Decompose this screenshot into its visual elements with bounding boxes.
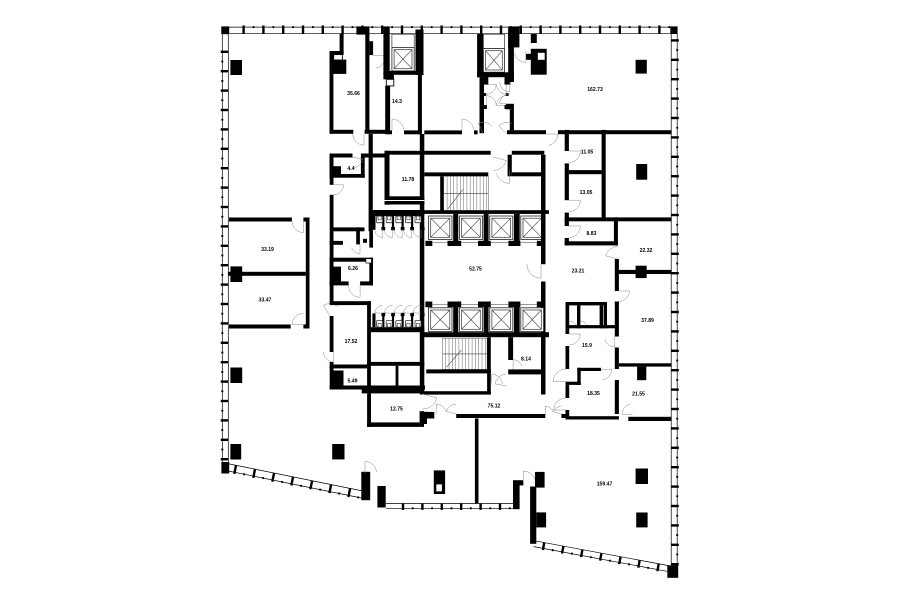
svg-text:37.89: 37.89 <box>641 318 654 324</box>
svg-text:8.14: 8.14 <box>521 357 531 363</box>
svg-text:35.66: 35.66 <box>347 91 360 97</box>
svg-text:33.47: 33.47 <box>259 297 272 303</box>
svg-text:52.75: 52.75 <box>469 267 482 273</box>
svg-text:12.75: 12.75 <box>390 407 403 413</box>
svg-text:13.05: 13.05 <box>580 190 593 196</box>
svg-text:14.3: 14.3 <box>392 99 402 105</box>
svg-text:15.9: 15.9 <box>582 343 592 349</box>
svg-text:8.83: 8.83 <box>587 231 597 237</box>
svg-text:11.05: 11.05 <box>581 150 594 156</box>
svg-text:162.73: 162.73 <box>587 87 603 93</box>
svg-text:6.26: 6.26 <box>348 266 358 272</box>
svg-text:22.32: 22.32 <box>640 248 653 254</box>
svg-text:18.35: 18.35 <box>587 391 600 397</box>
svg-text:75.12: 75.12 <box>488 403 501 409</box>
svg-text:159.47: 159.47 <box>597 482 613 488</box>
svg-text:4.4: 4.4 <box>347 166 354 172</box>
svg-text:11.78: 11.78 <box>402 177 415 183</box>
svg-text:21.55: 21.55 <box>632 392 645 398</box>
svg-text:5.49: 5.49 <box>348 379 358 385</box>
svg-text:17.52: 17.52 <box>345 339 358 345</box>
svg-text:33.19: 33.19 <box>261 247 274 253</box>
svg-text:23.21: 23.21 <box>572 269 585 275</box>
